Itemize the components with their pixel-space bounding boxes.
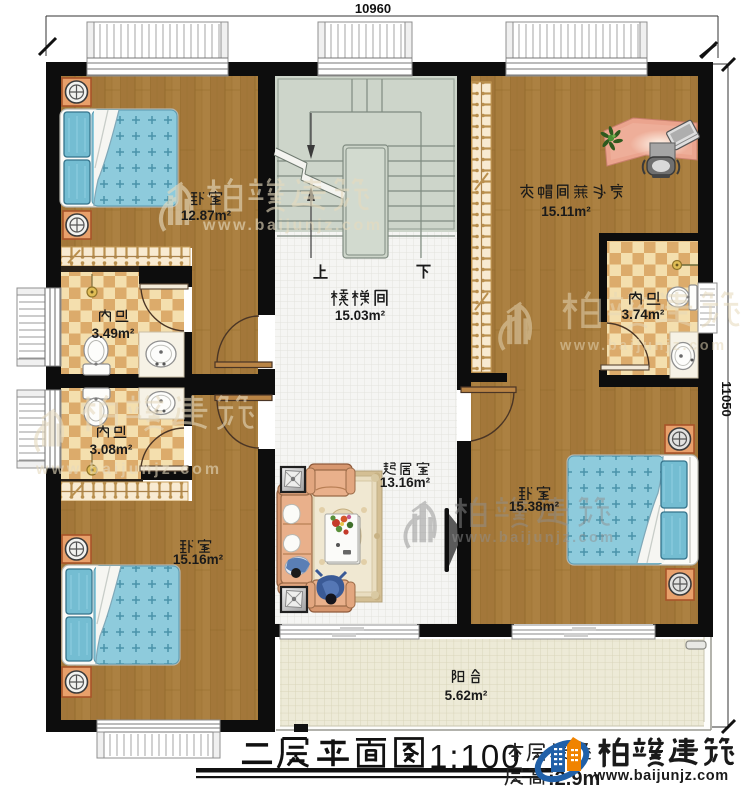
- svg-text:3.08m²: 3.08m²: [90, 442, 133, 457]
- svg-text:13.16m²: 13.16m²: [380, 475, 431, 490]
- svg-text:15.16m²: 15.16m²: [173, 552, 224, 567]
- svg-text:15.11m²: 15.11m²: [541, 204, 591, 219]
- svg-text:15.03m²: 15.03m²: [335, 308, 386, 323]
- svg-text:www.baijunjz.com: www.baijunjz.com: [559, 338, 727, 354]
- svg-text:12.87m²: 12.87m²: [181, 208, 232, 223]
- svg-text:5.62m²: 5.62m²: [445, 688, 488, 703]
- svg-text:3.49m²: 3.49m²: [92, 326, 135, 341]
- svg-text:10960: 10960: [355, 1, 391, 16]
- svg-text:15.38m²: 15.38m²: [509, 499, 560, 514]
- svg-text:www.baijunjz.com: www.baijunjz.com: [451, 530, 616, 546]
- svg-text:www.baijunjz.com: www.baijunjz.com: [35, 461, 222, 478]
- svg-text:3.74m²: 3.74m²: [622, 307, 665, 322]
- svg-text:www.baijunjz.com: www.baijunjz.com: [593, 768, 729, 784]
- svg-text:11050: 11050: [719, 381, 734, 416]
